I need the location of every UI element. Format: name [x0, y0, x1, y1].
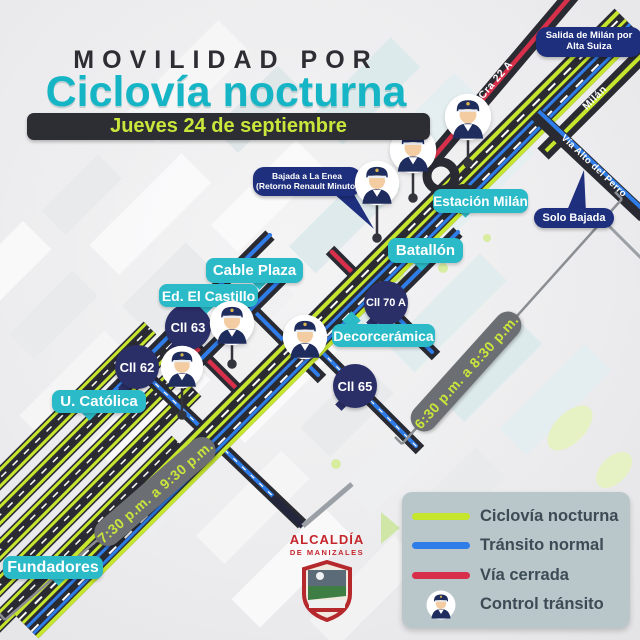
note-solo-bajada: Solo Bajada	[534, 208, 614, 228]
police-legend-icon	[412, 589, 470, 621]
page-title: Ciclovía nocturna	[0, 68, 452, 117]
place-pill-estacion-milan: Estación Milán	[433, 189, 528, 213]
place-pill-batallon: Batallón	[388, 238, 463, 263]
police-icon	[354, 160, 400, 206]
place-pill-fundadores: Fundadores	[3, 556, 103, 579]
place-pill-u-catolica: U. Católica	[52, 390, 146, 413]
date-banner: Jueves 24 de septiembre	[27, 113, 430, 140]
legend-item-transito: Tránsito normal	[412, 531, 618, 560]
shield-emblem	[300, 560, 354, 622]
transito-line-swatch	[412, 542, 470, 549]
street-circle-cll62: Cll 62	[115, 345, 159, 389]
date-text: Jueves 24 de septiembre	[110, 115, 347, 138]
legend-panel: Ciclovía nocturna Tránsito normal Vía ce…	[402, 492, 630, 628]
police-icon	[160, 345, 204, 389]
alcaldia-logo: ALCALDÍA DE MANIZALES	[282, 532, 372, 627]
legend-item-cerrada: Vía cerrada	[412, 561, 618, 590]
note-salida-milan: Salida de Milán por Alta Suiza	[536, 27, 640, 57]
police-icon	[282, 314, 328, 360]
legend-arrow-icon	[381, 512, 400, 544]
legend-item-control: Control tránsito	[412, 590, 618, 620]
police-icon	[209, 300, 255, 346]
cerrada-line-swatch	[412, 572, 470, 579]
street-label-via-alto: Vía Alto del Perro	[559, 133, 629, 200]
street-circle-cll70a: Cll 70 A	[364, 281, 408, 325]
ciclovia-infographic: Cra 22 A Milán Vía Alto del Perro	[0, 0, 640, 640]
road-via-alto-del-perro: Vía Alto del Perro	[536, 111, 640, 216]
note-bajada-enea: Bajada a La Enea (Retorno Renault Minuto…	[253, 167, 361, 196]
place-pill-decorceramica: Decorcerámica	[332, 324, 435, 347]
legend-item-ciclovia: Ciclovía nocturna	[412, 502, 618, 531]
street-circle-cll65: Cll 65	[333, 364, 377, 408]
ciclovia-line-swatch	[412, 513, 470, 520]
place-pill-cable-plaza: Cable Plaza	[206, 258, 303, 283]
